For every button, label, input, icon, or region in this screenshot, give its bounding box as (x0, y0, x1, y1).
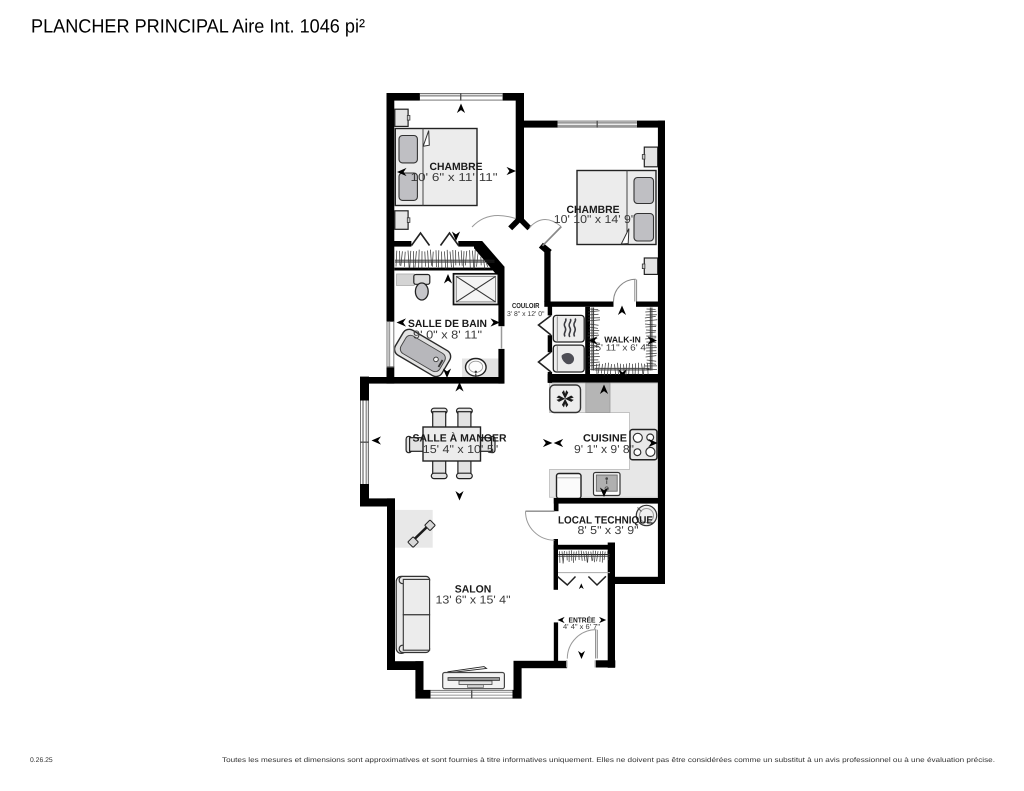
svg-text:0.26.25: 0.26.25 (30, 757, 53, 764)
svg-text:5' 11" x 6' 4": 5' 11" x 6' 4" (596, 343, 650, 353)
svg-text:COULOIR: COULOIR (512, 301, 540, 310)
svg-text:10' 10" x 14' 9": 10' 10" x 14' 9" (554, 214, 636, 226)
svg-text:CUISINE: CUISINE (583, 433, 627, 445)
svg-text:SALLE DE BAIN: SALLE DE BAIN (408, 318, 487, 330)
svg-text:SALLE À MANGER: SALLE À MANGER (413, 432, 507, 445)
svg-text:8' 5" x 3' 9": 8' 5" x 3' 9" (578, 525, 639, 537)
svg-text:4' 4" x 6' 7": 4' 4" x 6' 7" (563, 622, 600, 631)
svg-text:9' 0" x 8' 11": 9' 0" x 8' 11" (413, 330, 482, 342)
svg-text:15' 4" x 10' 5": 15' 4" x 10' 5" (423, 444, 499, 456)
svg-text:Toutes les mesures et dimensio: Toutes les mesures et dimensions sont ap… (222, 757, 995, 764)
svg-text:PLANCHER PRINCIPAL Aire Int. 1: PLANCHER PRINCIPAL Aire Int. 1046 pi² (31, 16, 366, 37)
svg-text:10' 6" x 11' 11": 10' 6" x 11' 11" (411, 172, 498, 184)
svg-text:13' 6" x 15' 4": 13' 6" x 15' 4" (436, 595, 511, 607)
svg-text:9' 1" x 9' 8": 9' 1" x 9' 8" (574, 444, 634, 456)
svg-text:3' 8" x 12' 0": 3' 8" x 12' 0" (507, 311, 545, 318)
